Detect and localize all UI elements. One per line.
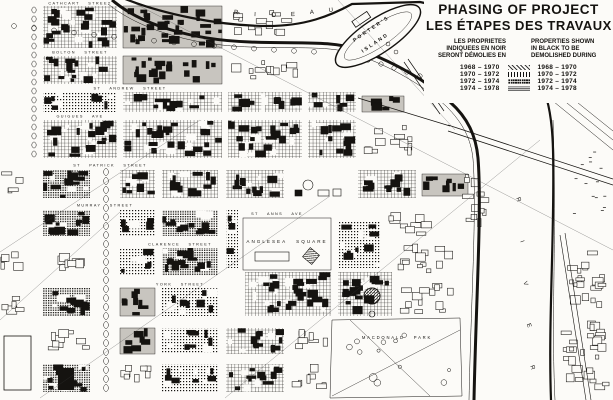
title-english: PHASING OF PROJECT	[426, 2, 611, 18]
legend-note-en-line: DEMOLISHED DURING	[531, 53, 609, 60]
legend-note-french: LES PROPRIETES INDIQUEES EN NOIR SERONT …	[426, 39, 506, 60]
river-label-rideau-letter: A	[310, 10, 314, 16]
legend-note-fr-line: INDIQUEES EN NOIR	[428, 46, 506, 53]
phase-1-years-en: 1968 – 1970	[538, 64, 592, 71]
river-label-rideau-letter: U	[328, 8, 333, 14]
phase-2-years-fr: 1970 – 1972	[446, 71, 500, 78]
place-label-macdonald-park: MACDONALD PARK	[362, 335, 432, 340]
legend-note-en-line: PROPERTIES SHOWN	[531, 39, 609, 46]
phase-4-years-fr: 1974 – 1978	[446, 85, 500, 92]
legend-row-phase-1: 1968 – 1970 1968 – 1970	[426, 64, 611, 71]
street-label: ST PATRICK STREET	[73, 164, 147, 168]
street-label: YORK STREET	[156, 283, 204, 287]
river-label-river-letter: E	[525, 323, 532, 329]
map-sheet: CATHCART STREETBOLTON STREETST ANDREW ST…	[0, 0, 613, 400]
river-label-river-letter: R	[528, 365, 535, 372]
legend-note-fr-line: SERONT DÉMOLIES EN	[428, 53, 506, 60]
river-label-river-letter: I	[518, 240, 524, 244]
phase-4-swatch-grey-icon	[508, 86, 530, 91]
legend-note-en-line: IN BLACK TO BE	[531, 46, 609, 53]
river-label-rideau-letter: E	[291, 12, 295, 18]
street-label: GUIGUES AVE	[56, 115, 103, 119]
phase-3-swatch-crosshatch-icon	[508, 79, 530, 84]
river-label-river-letter: V	[521, 281, 528, 287]
legend-note-fr-line: LES PROPRIETES	[428, 39, 506, 46]
legend-row-phase-3: 1972 – 1974 1972 – 1974	[426, 78, 611, 85]
street-label: BOLTON STREET	[52, 51, 108, 55]
street-label: ST ANNS AVE	[251, 212, 303, 216]
title-french: LES ÉTAPES DES TRAVAUX	[426, 18, 611, 34]
phase-3-years-en: 1972 – 1974	[538, 78, 592, 85]
phase-3-years-fr: 1972 – 1974	[446, 78, 500, 85]
legend-row-phase-4: 1974 – 1978 1974 – 1978	[426, 85, 611, 92]
street-label: MURRAY STREET	[77, 204, 133, 208]
place-label-anglesea-square: ANGLESEA SQUARE	[246, 239, 327, 244]
street-label: CATHCART STREET	[48, 2, 111, 6]
church-block	[292, 174, 352, 198]
legend-phase-rows: 1968 – 1970 1968 – 1970 1970 – 1972 1970…	[426, 64, 611, 92]
phase-1-swatch-diagonal-hatch-icon	[508, 65, 530, 70]
legend-panel: PHASING OF PROJECT LES ÉTAPES DES TRAVAU…	[424, 0, 613, 103]
phase-1-years-fr: 1968 – 1970	[446, 64, 500, 71]
legend-note-english: PROPERTIES SHOWN IN BLACK TO BE DEMOLISH…	[531, 39, 611, 60]
street-label: CLARENCE STREET	[148, 243, 212, 247]
phase-2-swatch-vertical-lines-icon	[508, 72, 530, 77]
river-label-rideau-letter: I	[254, 12, 256, 18]
phase-2-years-en: 1970 – 1972	[538, 71, 592, 78]
legend-notes: LES PROPRIETES INDIQUEES EN NOIR SERONT …	[426, 39, 611, 60]
street-label: ST ANDREW STREET	[94, 87, 167, 91]
river-label-rideau-letter: D	[272, 13, 277, 19]
phase-4-years-en: 1974 – 1978	[538, 85, 592, 92]
legend-row-phase-2: 1970 – 1972 1970 – 1972	[426, 71, 611, 78]
